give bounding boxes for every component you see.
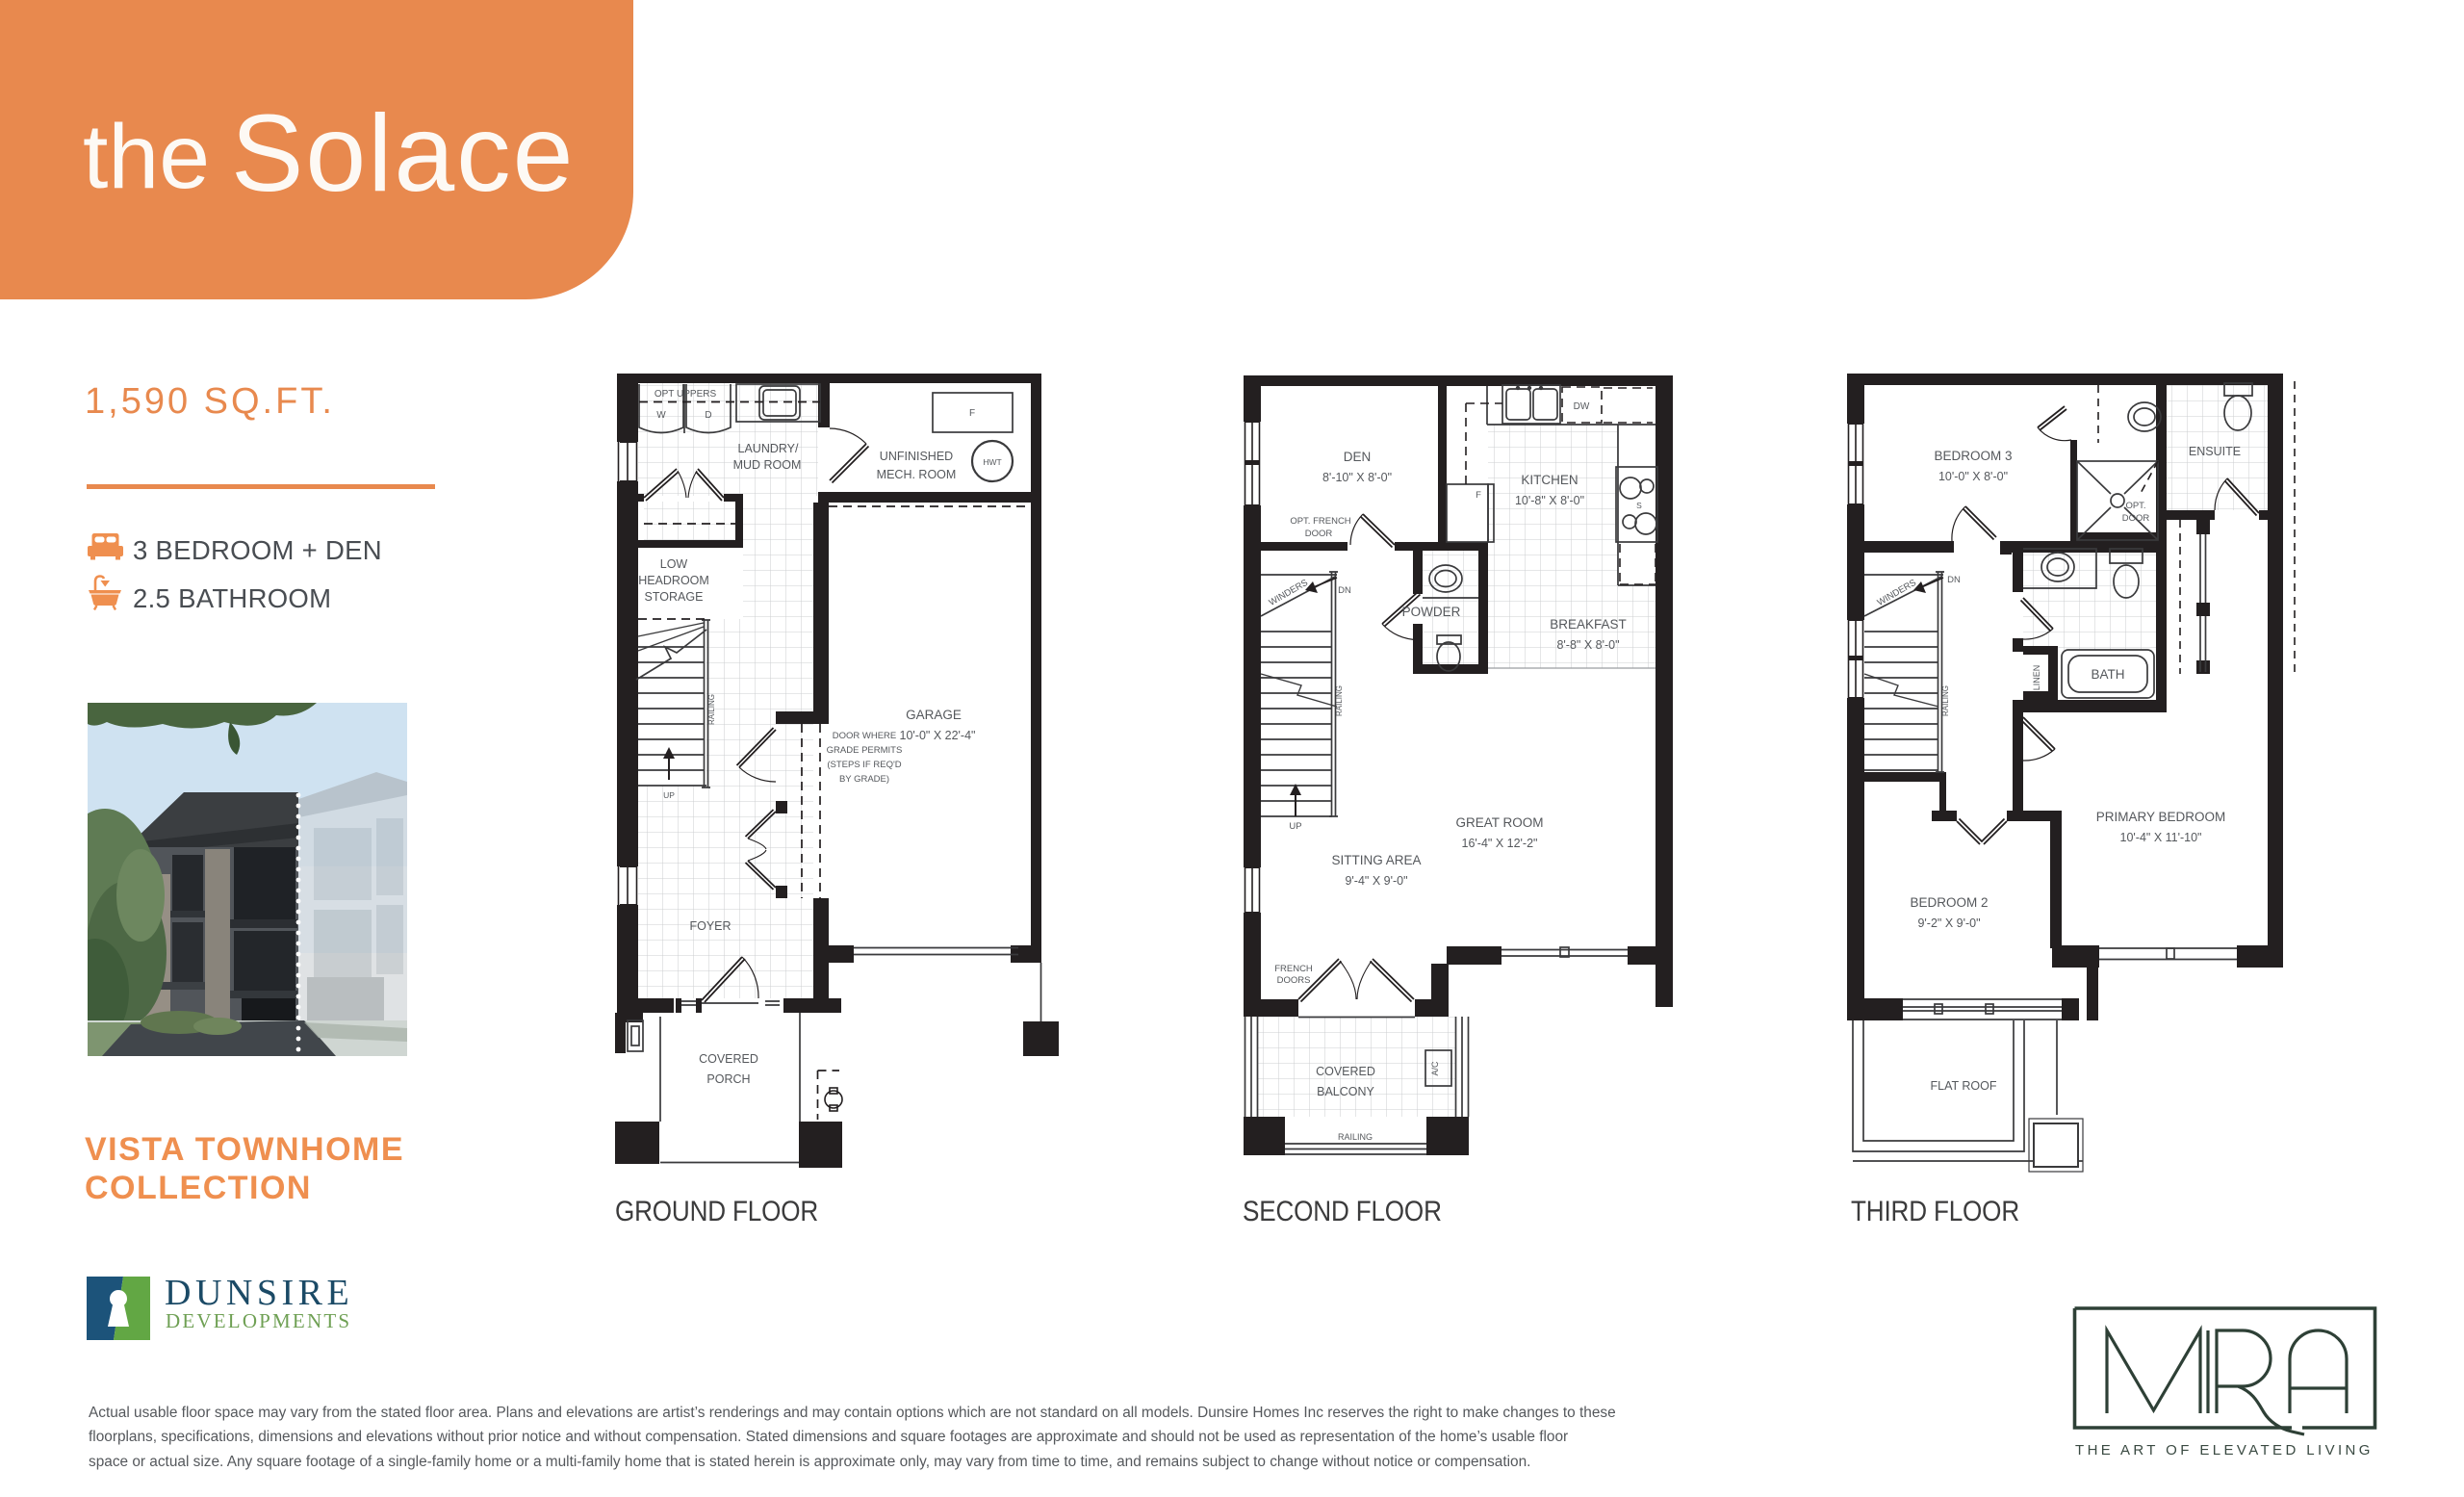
svg-text:RAILING: RAILING	[1941, 685, 1950, 716]
svg-text:BY GRADE): BY GRADE)	[839, 774, 889, 785]
svg-text:POWDER: POWDER	[1402, 605, 1461, 619]
svg-text:DW: DW	[1574, 401, 1590, 412]
svg-text:LAUNDRY/: LAUNDRY/	[738, 442, 800, 455]
svg-text:10'-0" X 8'-0": 10'-0" X 8'-0"	[1938, 470, 2008, 483]
svg-text:DOORS: DOORS	[1277, 975, 1311, 986]
svg-text:8'-10" X 8'-0": 8'-10" X 8'-0"	[1322, 471, 1392, 484]
svg-text:SITTING AREA: SITTING AREA	[1331, 853, 1421, 867]
svg-text:OPT.: OPT.	[2125, 501, 2145, 511]
svg-text:9'-4" X 9'-0": 9'-4" X 9'-0"	[1345, 874, 1407, 888]
svg-text:FOYER: FOYER	[689, 919, 731, 933]
svg-text:LINEN: LINEN	[2032, 665, 2041, 691]
svg-text:DEN: DEN	[1344, 450, 1372, 464]
svg-text:10'-8" X 8'-0": 10'-8" X 8'-0"	[1515, 494, 1584, 507]
svg-text:KITCHEN: KITCHEN	[1521, 473, 1578, 487]
svg-text:A/C: A/C	[1430, 1061, 1440, 1076]
svg-text:DN: DN	[1947, 575, 1961, 585]
svg-text:S: S	[1636, 501, 1642, 510]
svg-text:8'-8" X 8'-0": 8'-8" X 8'-0"	[1556, 638, 1619, 652]
svg-text:OPT UPPERS: OPT UPPERS	[654, 389, 717, 400]
svg-text:DOOR: DOOR	[1305, 529, 1333, 539]
svg-text:PORCH: PORCH	[706, 1072, 750, 1086]
svg-text:UP: UP	[1289, 821, 1301, 832]
svg-text:GREAT ROOM: GREAT ROOM	[1455, 815, 1543, 830]
svg-text:WINDERS: WINDERS	[1876, 578, 1918, 608]
svg-text:F: F	[969, 408, 975, 419]
svg-text:DOOR WHERE: DOOR WHERE	[833, 731, 897, 741]
svg-text:UNFINISHED: UNFINISHED	[880, 450, 953, 463]
svg-text:RAILING: RAILING	[1338, 1132, 1373, 1142]
svg-text:(STEPS IF REQ'D: (STEPS IF REQ'D	[827, 760, 901, 770]
svg-text:BEDROOM 2: BEDROOM 2	[1910, 895, 1988, 910]
svg-text:OPT. FRENCH: OPT. FRENCH	[1290, 516, 1350, 527]
svg-text:ENSUITE: ENSUITE	[2189, 445, 2241, 458]
svg-text:GRADE PERMITS: GRADE PERMITS	[827, 745, 903, 756]
svg-text:10'-4" X 11'-10": 10'-4" X 11'-10"	[2120, 831, 2202, 844]
svg-text:BEDROOM 3: BEDROOM 3	[1934, 449, 2012, 463]
svg-text:DN: DN	[1338, 585, 1351, 596]
svg-text:GARAGE: GARAGE	[906, 708, 962, 722]
svg-text:STORAGE: STORAGE	[645, 590, 704, 604]
svg-text:F: F	[1476, 490, 1481, 501]
svg-text:COVERED: COVERED	[699, 1052, 758, 1066]
svg-text:FRENCH: FRENCH	[1274, 964, 1313, 974]
svg-text:W: W	[656, 410, 666, 421]
svg-text:RAILING: RAILING	[1335, 685, 1344, 716]
svg-text:DOOR: DOOR	[2122, 513, 2150, 524]
svg-text:PRIMARY BEDROOM: PRIMARY BEDROOM	[2096, 810, 2226, 824]
svg-text:HWT: HWT	[983, 457, 1001, 467]
svg-text:BALCONY: BALCONY	[1317, 1085, 1374, 1098]
svg-text:16'-4" X 12'-2": 16'-4" X 12'-2"	[1462, 837, 1538, 850]
svg-text:D: D	[705, 410, 711, 421]
svg-text:LOW: LOW	[660, 557, 688, 571]
svg-text:COVERED: COVERED	[1316, 1065, 1375, 1078]
svg-text:10'-0" X 22'-4": 10'-0" X 22'-4"	[900, 729, 976, 742]
svg-text:MECH. ROOM: MECH. ROOM	[877, 468, 957, 481]
svg-text:HEADROOM: HEADROOM	[638, 574, 709, 587]
svg-text:RAILING: RAILING	[707, 694, 716, 725]
svg-text:UP: UP	[663, 790, 675, 800]
svg-text:BATH: BATH	[2091, 667, 2124, 682]
svg-text:FLAT ROOF: FLAT ROOF	[1931, 1079, 1997, 1093]
svg-text:9'-2" X 9'-0": 9'-2" X 9'-0"	[1917, 916, 1980, 930]
svg-text:MUD ROOM: MUD ROOM	[733, 458, 802, 472]
svg-text:THE ART OF ELEVATED LIVING: THE ART OF ELEVATED LIVING	[2075, 1442, 2374, 1458]
svg-text:BREAKFAST: BREAKFAST	[1550, 617, 1627, 632]
